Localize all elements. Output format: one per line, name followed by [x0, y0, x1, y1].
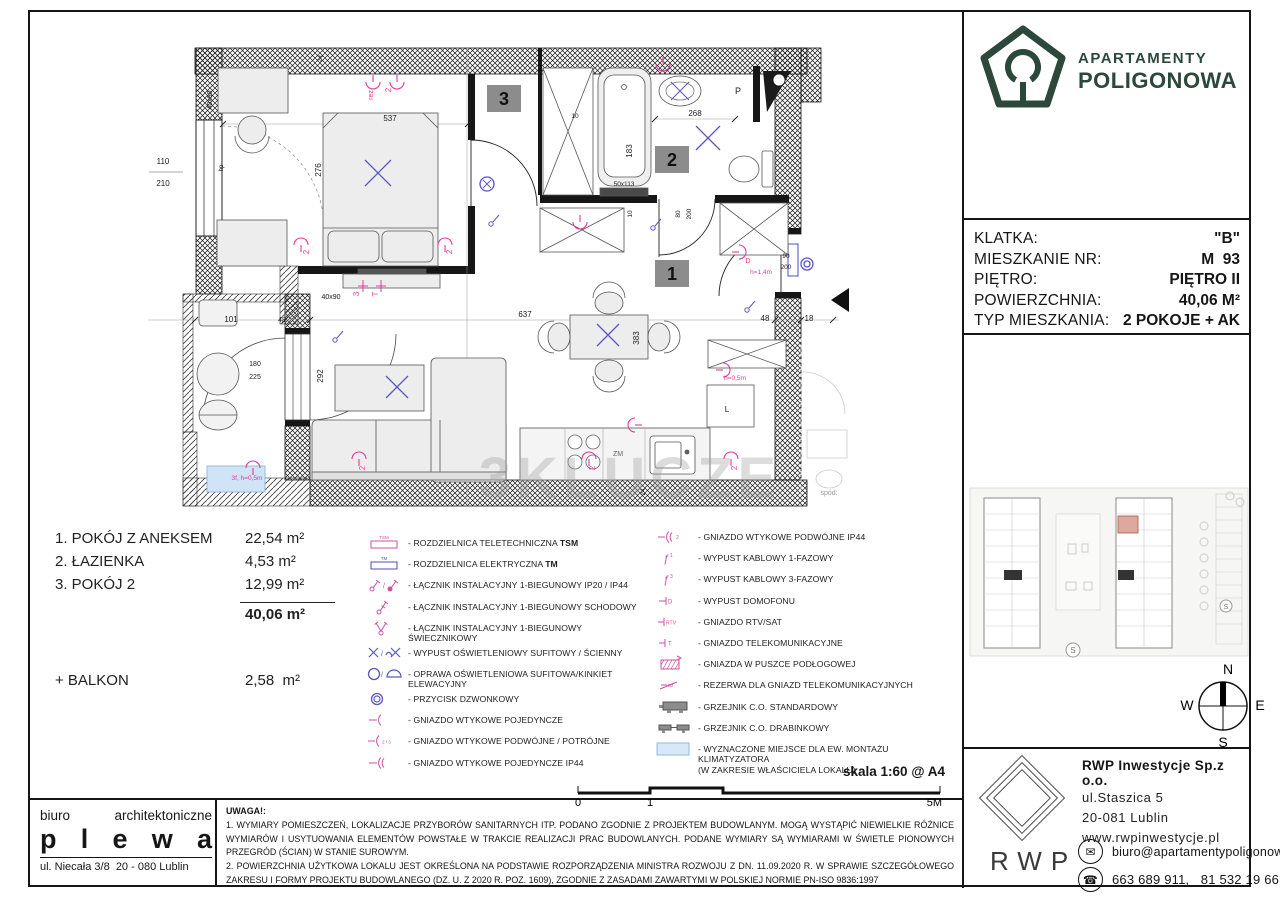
room-name: 2. ŁAZIENKA [55, 550, 144, 573]
svg-text:W: W [1180, 697, 1194, 713]
oprawa-icon: / [362, 665, 408, 683]
legend-item: - PRZYCISK DZWONKOWY [362, 690, 650, 711]
gniazdo-2-ip44-icon: 2 [652, 528, 698, 546]
highlighted-unit [1118, 516, 1138, 533]
plan-label: L [725, 405, 730, 414]
room-name: 1. POKÓJ Z ANEKSEM [55, 527, 213, 550]
legend-item: TM- ROZDZIELNICA ELEKTRYCZNA TM [362, 555, 650, 576]
plan-label: 3f, h=0,5m [232, 475, 263, 482]
plan-label: 180 [249, 361, 261, 368]
tv [358, 269, 426, 274]
plan-label: 18 [805, 314, 814, 323]
room-area: 12,99 m² [245, 573, 335, 596]
puszka-icon [652, 655, 698, 673]
plan-label: h=1,4m [750, 269, 772, 276]
plan-label: 90 [782, 253, 790, 260]
legend-item: ƒ1- WYPUST KABLOWY 1-FAZOWY [652, 549, 952, 570]
developer-block: RWP Inwestycje Sp.z o.o. ul.Staszica 5 2… [1082, 758, 1252, 848]
entrance-arrow-icon [831, 288, 849, 312]
legend-label: - GNIAZDO WTYKOWE PODWÓJNE / POTRÓJNE [408, 732, 610, 747]
plan-label: rez. [368, 88, 375, 100]
legend-label: - ŁĄCZNIK INSTALACYJNY 1-BIEGUNOWY SCHOD… [408, 598, 637, 613]
svg-text:3: 3 [670, 574, 673, 580]
rwp-logo-icon [972, 754, 1072, 846]
brand-pentagon-icon [976, 22, 1071, 117]
legend-item: ƒ3- WYPUST KABLOWY 3-FAZOWY [652, 570, 952, 591]
legend-item: - ŁĄCZNIK INSTALACYJNY 1-BIEGUNOWY SCHOD… [362, 598, 650, 619]
coffee-table [335, 365, 424, 411]
svg-text:N: N [1223, 661, 1233, 677]
total-area: 40,06 m² [245, 603, 335, 626]
plan-label: 110 [157, 157, 170, 166]
plan-label: 200 [686, 208, 693, 219]
rwp-logo-text: RWP [990, 846, 1077, 877]
legend-item: - GNIAZDA W PUSZCE PODŁOGOWEJ [652, 655, 952, 676]
svg-text:D: D [668, 599, 673, 605]
room-area: 4,53 m² [245, 550, 335, 573]
balcony-label: + BALKON [55, 669, 129, 692]
legend-label: - ROZDZIELNICA TELETECHNICZNA TSM [408, 534, 578, 549]
divider-info-bottom [963, 333, 1251, 335]
svg-text:2: 2 [667, 150, 677, 170]
legend-item: - GNIAZDO WTYKOWE POJEDYNCZE [362, 711, 650, 732]
plan-label: 101 [224, 315, 238, 324]
plan-label: 40x90 [207, 90, 214, 109]
legend-item: - GRZEJNIK C.O. DRABINKOWY [652, 719, 952, 740]
plan-label: 2 [384, 87, 393, 92]
przycisk-icon [362, 690, 408, 708]
plan-label: 276 [314, 163, 323, 177]
legend-label: - ŁĄCZNIK INSTALACYJNY 1-BIEGUNOWY IP20 … [408, 576, 628, 591]
wypust-osw-icon: / [362, 644, 408, 662]
svg-text:TSM: TSM [379, 535, 389, 540]
room-row: 2. ŁAZIENKA 4,53 m² [55, 550, 335, 573]
legend-item: - GRZEJNIK C.O. STANDARDOWY [652, 698, 952, 719]
plan-label: 48 [278, 317, 286, 324]
desk-chair [238, 116, 266, 144]
legend-item: /- ŁĄCZNIK INSTALACYJNY 1-BIEGUNOWY IP20… [362, 576, 650, 597]
legend-label: - REZERWA DLA GNIAZD TELEKOMUNIKACYJNYCH [698, 676, 913, 691]
legend-label: - ŁĄCZNIK INSTALACYJNY 1-BIEGUNOWY ŚWIEC… [408, 619, 650, 644]
legend-item: 2 / 3- GNIAZDO WTYKOWE PODWÓJNE / POTRÓJ… [362, 732, 650, 753]
plan-label: hp [219, 164, 225, 171]
switch-schodowy-icon [362, 598, 408, 616]
legend-label: - WYPUST DOMOFONU [698, 592, 795, 607]
klimatyzator-icon [652, 740, 698, 758]
plan-label: 80 [675, 210, 682, 218]
svg-text:2: 2 [676, 535, 679, 541]
gniazdo-1-ip44-icon [362, 754, 408, 772]
tm-box-icon: TM [362, 555, 408, 573]
bathtub [598, 68, 651, 196]
room-name: 3. POKÓJ 2 [55, 573, 135, 596]
plan-label: 10 [571, 113, 579, 120]
column-divider [962, 10, 964, 888]
divider-architect [215, 798, 217, 885]
plan-label: 210 [156, 179, 170, 188]
legend-item: Bz- REZERWA DLA GNIAZD TELEKOMUNIKACYJNY… [652, 676, 952, 697]
legend-item: D- WYPUST DOMOFONU [652, 592, 952, 613]
domofon-icon: D [652, 592, 698, 610]
svg-text:S: S [1224, 604, 1229, 611]
plan-label: 2 [358, 465, 367, 470]
legend-label: - GNIAZDO RTV/SAT [698, 613, 782, 628]
legend-item: /- WYPUST OŚWIETLENIOWY SUFITOWY / ŚCIEN… [362, 644, 650, 665]
notes-title: UWAGA!: [226, 805, 954, 819]
phone-row: ☎ 663 689 911, 81 532 19 66 [1078, 867, 1252, 892]
svg-text:/: / [383, 583, 385, 590]
toilet [729, 151, 773, 187]
svg-text:1: 1 [670, 553, 673, 559]
svg-text:3: 3 [499, 89, 509, 109]
svg-text:ƒ: ƒ [663, 574, 669, 586]
neighbour-ghost [801, 338, 847, 498]
legend-column-left: TSM- ROZDZIELNICA TELETECHNICZNA TSMTM- … [362, 534, 650, 775]
legend-label: - GNIAZDO WTYKOWE PODWÓJNE IP44 [698, 528, 865, 543]
total-row: 40,06 m² [55, 603, 335, 626]
gniazdo-1-icon [362, 711, 408, 729]
email-icon: ✉ [1078, 839, 1103, 864]
svg-text:RTV: RTV [666, 620, 677, 626]
brand-wordmark: APARTAMENTY POLIGONOWA [1078, 50, 1237, 94]
legend-item: 2- GNIAZDO WTYKOWE PODWÓJNE IP44 [652, 528, 952, 549]
plan-label: 383 [632, 331, 641, 345]
balcony-area: 2,58 m² [245, 669, 335, 692]
email-row: ✉ biuro@apartamentypoligonowa.pl [1078, 839, 1252, 864]
legend-item: - GNIAZDO WTYKOWE POJEDYNCZE IP44 [362, 754, 650, 775]
floor-plan-sheet: 32153727626818350x113101080200110210hp40… [0, 0, 1280, 906]
legend-label: - WYPUST KABLOWY 1-FAZOWY [698, 549, 833, 564]
grzejnik-std-icon [652, 698, 698, 716]
svg-text:/: / [381, 651, 383, 658]
note-line: 1. WYMIARY POMIESZCZEŃ, LOKALIZACJE PRZY… [226, 819, 954, 860]
phone-icon: ☎ [1078, 867, 1103, 892]
legend-label: - GNIAZDO WTYKOWE POJEDYNCZE IP44 [408, 754, 584, 769]
rtv-icon: RTV [652, 613, 698, 631]
legend-item: - ŁĄCZNIK INSTALACYJNY 1-BIEGUNOWY ŚWIEC… [362, 619, 650, 644]
room-row: 1. POKÓJ Z ANEKSEM 22,54 m² [55, 527, 335, 550]
legend-label: - GNIAZDO TELEKOMUNIKACYJNE [698, 634, 843, 649]
legend-label: - GNIAZDO WTYKOWE POJEDYNCZE [408, 711, 563, 726]
tv-console [343, 274, 440, 288]
plan-label: 3 [352, 291, 361, 296]
wypust-3f-icon: ƒ3 [652, 570, 698, 588]
room-area: 22,54 m² [245, 527, 335, 550]
fridge [707, 385, 754, 427]
note-line: 2. POWIERZCHNIA UŻYTKOWA LOKALU JEST OKR… [226, 860, 954, 888]
architect-address: ul. Niecała 3/8 20 - 080 Lublin [40, 857, 212, 873]
floor-plan: 32153727626818350x113101080200110210hp40… [135, 38, 915, 508]
tsm-box-icon: TSM [362, 534, 408, 552]
plan-label: 10 [627, 210, 634, 218]
divider-info-top [963, 218, 1251, 220]
svg-text:TM: TM [381, 556, 388, 561]
plan-label: 48 [761, 314, 770, 323]
plan-label: 225 [249, 374, 261, 381]
plan-label: 268 [688, 109, 702, 118]
legend-item: RTV- GNIAZDO RTV/SAT [652, 613, 952, 634]
legend-label: - OPRAWA OŚWIETLENIOWA SUFITOWA/KINKIET … [408, 665, 650, 690]
telekom-icon: T [652, 634, 698, 652]
svg-text:E: E [1255, 697, 1264, 713]
room-row: 3. POKÓJ 2 12,99 m² [55, 573, 335, 596]
svg-text:T: T [668, 641, 672, 647]
svg-text:/: / [381, 672, 383, 679]
plan-label: 2 [302, 249, 311, 254]
desk [218, 68, 288, 113]
plan-label: 2 [445, 249, 454, 254]
watermark: 3KLUCZE [479, 446, 781, 508]
rezerwa-icon: Bz [652, 676, 698, 694]
svg-text:S: S [1070, 646, 1075, 655]
scale-label: skala 1:60 @ A4 [700, 764, 945, 779]
svg-text:ƒ: ƒ [663, 553, 669, 565]
legend-item: TSM- ROZDZIELNICA TELETECHNICZNA TSM [362, 534, 650, 555]
legend-label: - WYPUST OŚWIETLENIOWY SUFITOWY / ŚCIENN… [408, 644, 623, 659]
plan-label: 637 [518, 310, 532, 319]
dining-set [538, 282, 680, 392]
wypust-1f-icon: ƒ1 [652, 549, 698, 567]
svg-text:1: 1 [667, 264, 677, 284]
plan-label: 50x113 [614, 181, 635, 188]
plan-label: D [745, 258, 750, 265]
plan-label: 537 [383, 114, 397, 123]
room-list: 1. POKÓJ Z ANEKSEM 22,54 m² 2. ŁAZIENKA … [55, 527, 335, 692]
legend-label: - GNIAZDA W PUSZCE PODŁOGOWEJ [698, 655, 856, 670]
plan-label: T [371, 291, 380, 296]
legend-label: - GRZEJNIK C.O. DRABINKOWY [698, 719, 830, 734]
plan-label: spód: [820, 490, 837, 497]
gniazdo-23-icon: 2 / 3 [362, 732, 408, 750]
phone-text: 663 689 911, 81 532 19 66 [1112, 872, 1279, 887]
apartment-info-panel: KLATKA:"B" MIESZKANIE NR:M 93 PIĘTRO:PIĘ… [974, 229, 1240, 332]
notes: UWAGA!: 1. WYMIARY POMIESZCZEŃ, LOKALIZA… [226, 805, 954, 888]
grzejnik-drab-icon [652, 719, 698, 737]
balcony-row: + BALKON 2,58 m² [55, 669, 335, 692]
svg-text:Bz: Bz [668, 683, 674, 688]
architect-name: plewa [40, 824, 212, 855]
plan-label: h=0,5m [724, 375, 746, 382]
plan-label: 183 [625, 144, 634, 158]
legend-item: /- OPRAWA OŚWIETLENIOWA SUFITOWA/KINKIET… [362, 665, 650, 690]
plan-label: 292 [316, 369, 325, 383]
legend-item: T- GNIAZDO TELEKOMUNIKACYJNE [652, 634, 952, 655]
architect-box: biuro architektoniczne plewa ul. Niecała… [40, 808, 212, 873]
legend-label: - GRZEJNIK C.O. STANDARDOWY [698, 698, 838, 713]
switch-1-icon: / [362, 576, 408, 594]
legend-label: - WYPUST KABLOWY 3-FAZOWY [698, 570, 833, 585]
plan-label: P [735, 86, 741, 96]
svg-text:2 / 3: 2 / 3 [382, 740, 391, 745]
legend-label: - ROZDZIELNICA ELEKTRYCZNA TM [408, 555, 558, 570]
email-text: biuro@apartamentypoligonowa.pl [1112, 845, 1280, 859]
legend-label: - PRZYCISK DZWONKOWY [408, 690, 519, 705]
legend-column-right: 2- GNIAZDO WTYKOWE PODWÓJNE IP44ƒ1- WYPU… [652, 528, 952, 775]
bed [323, 113, 438, 266]
site-plan: S S [968, 486, 1250, 678]
plan-label: 200 [781, 264, 792, 271]
dresser [217, 220, 287, 266]
svg-text:S: S [1218, 734, 1227, 750]
plan-label: 40x90 [321, 294, 340, 301]
switch-swiecznikowy-icon [362, 619, 408, 637]
compass-icon: N S W E [1173, 652, 1273, 752]
